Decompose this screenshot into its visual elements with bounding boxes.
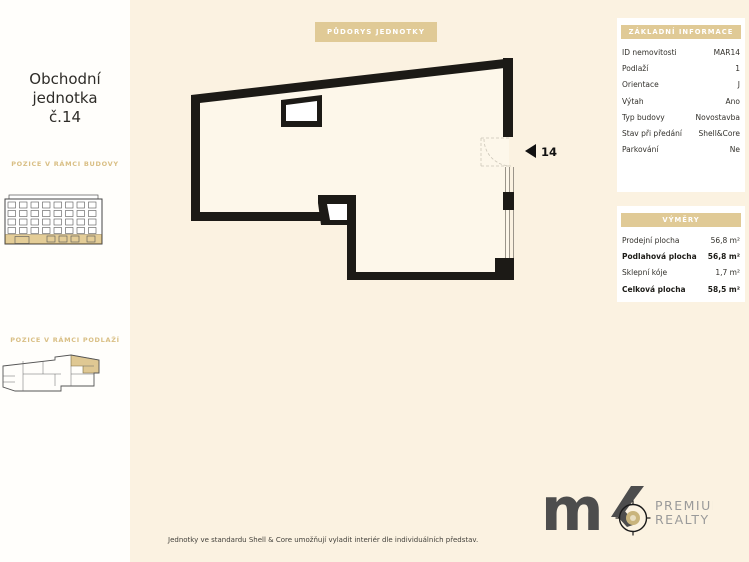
info-row: VýtahAno bbox=[617, 93, 745, 109]
info-label: Výtah bbox=[622, 97, 644, 106]
info-row: Typ budovyNovostavba bbox=[617, 109, 745, 125]
footer-note: Jednotky ve standardu Shell & Core umožň… bbox=[168, 536, 478, 544]
areas-rows: Prodejní plocha56,8 m² Podlahová plocha5… bbox=[617, 232, 745, 297]
basic-info-rows: ID nemovitostiMAR14 Podlaží1 OrientaceJ … bbox=[617, 44, 745, 158]
area-label: Podlahová plocha bbox=[622, 252, 697, 261]
info-row: Podlaží1 bbox=[617, 60, 745, 76]
mk-premium-realty-logo: m PREMIUM REALTY bbox=[543, 483, 713, 538]
logo-premium-text: PREMIUM bbox=[655, 498, 713, 513]
areas-header: VÝMĚRY bbox=[621, 213, 741, 227]
logo-k-arm bbox=[611, 486, 644, 517]
logo-m: m bbox=[543, 483, 604, 538]
page-title: Obchodní jednotka č.14 bbox=[0, 70, 130, 127]
info-value: Shell&Core bbox=[698, 129, 740, 138]
areas-panel: VÝMĚRY Prodejní plocha56,8 m² Podlahová … bbox=[617, 206, 745, 302]
title-line-1: Obchodní bbox=[0, 70, 130, 89]
info-row: Stav při předáníShell&Core bbox=[617, 125, 745, 141]
logo-compass-dot-center bbox=[630, 515, 636, 521]
basic-info-panel: ZÁKLADNÍ INFORMACE ID nemovitostiMAR14 P… bbox=[617, 18, 745, 192]
area-row: Podlahová plocha56,8 m² bbox=[617, 248, 745, 264]
info-row: ID nemovitostiMAR14 bbox=[617, 44, 745, 60]
info-label: ID nemovitosti bbox=[622, 48, 677, 57]
building-elevation-image bbox=[3, 193, 105, 251]
info-label: Parkování bbox=[622, 145, 658, 154]
title-line-2: jednotka bbox=[0, 89, 130, 108]
info-row: OrientaceJ bbox=[617, 77, 745, 93]
area-value: 56,8 m² bbox=[711, 236, 740, 245]
area-label: Sklepní kóje bbox=[622, 268, 667, 277]
shaft-bottom bbox=[327, 204, 347, 220]
section-label-floor-position: POZICE V RÁMCI PODLAŽÍ bbox=[0, 336, 130, 344]
info-value: 1 bbox=[735, 64, 740, 73]
area-row: Sklepní kóje1,7 m² bbox=[617, 265, 745, 281]
title-line-3: č.14 bbox=[0, 108, 130, 127]
info-value: Ano bbox=[726, 97, 740, 106]
floorplan-drawing: 14 bbox=[175, 50, 570, 300]
info-label: Stav při předání bbox=[622, 129, 682, 138]
info-label: Orientace bbox=[622, 80, 659, 89]
area-value: 56,8 m² bbox=[708, 252, 740, 261]
info-value: Ne bbox=[730, 145, 740, 154]
basic-info-header: ZÁKLADNÍ INFORMACE bbox=[621, 25, 741, 39]
area-row: Celková plocha58,5 m² bbox=[617, 281, 745, 297]
info-value: Novostavba bbox=[696, 113, 740, 122]
area-row: Prodejní plocha56,8 m² bbox=[617, 232, 745, 248]
entrance-arrow-icon bbox=[525, 144, 536, 158]
area-label: Prodejní plocha bbox=[622, 236, 679, 245]
area-label: Celková plocha bbox=[622, 285, 686, 294]
area-value: 58,5 m² bbox=[708, 285, 740, 294]
info-label: Typ budovy bbox=[622, 113, 665, 122]
plan-title-badge: PŮDORYS JEDNOTKY bbox=[315, 22, 437, 42]
info-row: ParkováníNe bbox=[617, 142, 745, 158]
info-label: Podlaží bbox=[622, 64, 648, 73]
info-value: J bbox=[738, 80, 740, 89]
logo-realty-text: REALTY bbox=[655, 512, 710, 527]
area-value: 1,7 m² bbox=[715, 268, 740, 277]
info-value: MAR14 bbox=[714, 48, 740, 57]
floor-outline-image bbox=[1, 352, 107, 400]
section-label-building-position: POZICE V RÁMCI BUDOVY bbox=[0, 160, 130, 168]
sidebar: Obchodní jednotka č.14 POZICE V RÁMCI BU… bbox=[0, 0, 130, 562]
unit-number-label: 14 bbox=[541, 145, 557, 159]
